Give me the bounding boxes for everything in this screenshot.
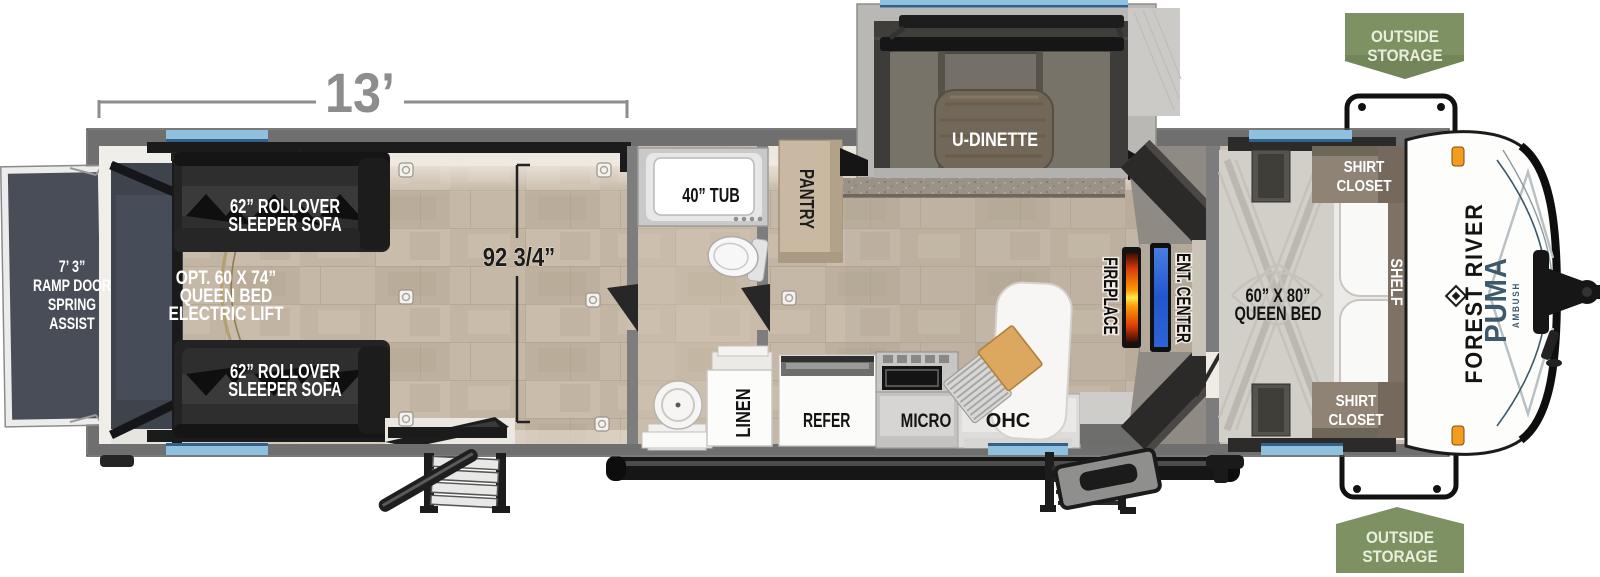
svg-text:13’: 13’ xyxy=(325,63,395,125)
svg-text:OHC: OHC xyxy=(986,410,1030,432)
svg-text:STORAGE: STORAGE xyxy=(1367,46,1443,65)
svg-text:SLEEPER SOFA: SLEEPER SOFA xyxy=(228,378,342,401)
svg-text:92 3/4”: 92 3/4” xyxy=(483,243,555,272)
svg-text:CLOSET: CLOSET xyxy=(1336,178,1391,195)
svg-text:RAMP DOOR: RAMP DOOR xyxy=(33,276,111,295)
svg-text:ASSIST: ASSIST xyxy=(49,314,94,333)
svg-text:7’ 3”: 7’ 3” xyxy=(59,257,86,276)
svg-text:SHELF: SHELF xyxy=(1387,258,1405,306)
svg-text:STORAGE: STORAGE xyxy=(1362,547,1438,566)
svg-text:AMBUSH: AMBUSH xyxy=(1511,282,1522,328)
svg-text:CLOSET: CLOSET xyxy=(1328,412,1383,429)
svg-text:LINEN: LINEN xyxy=(731,388,754,437)
svg-text:FIREPLACE: FIREPLACE xyxy=(1099,257,1121,334)
svg-text:SLEEPER SOFA: SLEEPER SOFA xyxy=(228,213,342,236)
svg-text:QUEEN BED: QUEEN BED xyxy=(1235,303,1322,324)
svg-text:ENT. CENTER: ENT. CENTER xyxy=(1172,253,1194,343)
svg-text:MICRO: MICRO xyxy=(901,409,952,431)
svg-text:40” TUB: 40” TUB xyxy=(682,184,740,207)
svg-text:PUMA: PUMA xyxy=(1479,257,1514,343)
svg-text:SHIRT: SHIRT xyxy=(1344,159,1385,176)
svg-text:ELECTRIC LIFT: ELECTRIC LIFT xyxy=(168,303,283,325)
svg-text:SHIRT: SHIRT xyxy=(1336,393,1377,410)
svg-text:U-DINETTE: U-DINETTE xyxy=(952,129,1038,151)
svg-text:PANTRY: PANTRY xyxy=(795,169,818,229)
svg-text:SPRING: SPRING xyxy=(48,295,96,314)
svg-text:OUTSIDE: OUTSIDE xyxy=(1371,27,1439,46)
svg-text:REFER: REFER xyxy=(803,408,851,431)
svg-text:OUTSIDE: OUTSIDE xyxy=(1366,528,1434,547)
